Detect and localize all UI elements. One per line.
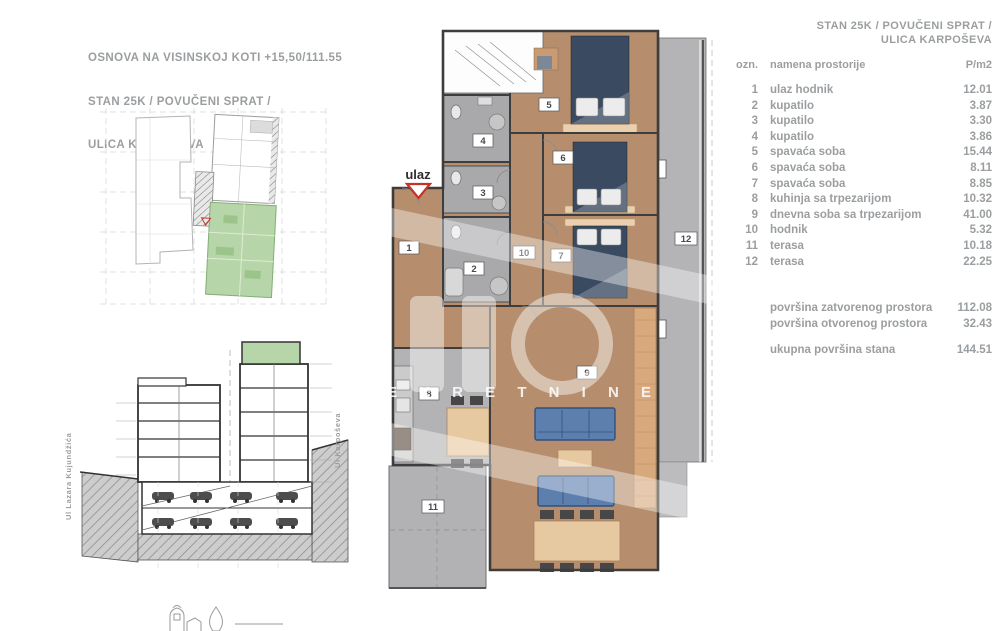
- title-line-1: OSNOVA NA VISINSKOJ KOTI +15,50/111.55: [88, 51, 342, 66]
- table-row: 10hodnik5.32: [728, 223, 992, 239]
- room-label-4: 4: [473, 134, 493, 147]
- agency-logo-sketch: [165, 602, 295, 631]
- svg-text:5: 5: [546, 100, 552, 111]
- room-label-12: 12: [675, 232, 697, 245]
- section-highlight-floor: [242, 342, 300, 364]
- svg-text:3: 3: [480, 188, 485, 199]
- table-row: 1ulaz hodnik12.01: [728, 83, 992, 99]
- bed-room6: [565, 142, 635, 213]
- street-label-left: Ul Lazara Kujundžića: [64, 388, 73, 520]
- room-label-11: 11: [422, 500, 444, 513]
- table-row: 8kuhinja sa trpezarijom10.32: [728, 192, 992, 208]
- terrace-12: [652, 38, 712, 462]
- col-ozn: ozn.: [728, 59, 758, 71]
- panel-header-line-1: STAN 25K / POVUČENI SPRAT /: [728, 20, 992, 34]
- section-right-tower: [240, 342, 308, 482]
- svg-text:6: 6: [560, 153, 565, 164]
- svg-text:12: 12: [681, 234, 692, 245]
- svg-text:1: 1: [406, 243, 412, 254]
- col-area: P/m2: [940, 59, 992, 71]
- room-label-3: 3: [473, 186, 493, 199]
- bed-room5: [563, 36, 637, 134]
- panel-header: STAN 25K / POVUČENI SPRAT / ULICA KARPOŠ…: [728, 20, 992, 47]
- table-row: 3kupatilo3.30: [728, 114, 992, 130]
- room-schedule-panel: STAN 25K / POVUČENI SPRAT / ULICA KARPOŠ…: [728, 20, 992, 359]
- room-label-2: 2: [464, 262, 484, 275]
- keyplan-wing: [190, 114, 281, 298]
- total-row: površina zatvorenog prostora112.08: [728, 301, 992, 317]
- section-left-tower: [138, 378, 220, 482]
- col-name: namena prostorije: [758, 59, 940, 71]
- street-label-right: Ul Karpoševa: [333, 372, 342, 468]
- sofa-1: [535, 408, 615, 440]
- svg-text:11: 11: [428, 502, 439, 513]
- watermark-text: E K R E T N I N E: [387, 384, 660, 401]
- key-plan: [98, 100, 333, 315]
- table-row: 2kupatilo3.87: [728, 99, 992, 115]
- svg-text:4: 4: [480, 136, 486, 147]
- table-row: 4kupatilo3.86: [728, 130, 992, 146]
- room-label-6: 6: [553, 151, 573, 164]
- floor-plan-sheet: { "title_block": { "line1": "OSNOVA NA V…: [0, 0, 1000, 631]
- totals-block: površina zatvorenog prostora112.08 površ…: [728, 301, 992, 359]
- room-label-5: 5: [539, 98, 559, 111]
- dining-table: [534, 521, 620, 561]
- table-row: 9dnevna soba sa trpezarijom41.00: [728, 208, 992, 224]
- bathroom-4: [443, 95, 510, 162]
- section-garage: [142, 482, 312, 534]
- table-row: 11terasa10.18: [728, 239, 992, 255]
- roof-area: [443, 31, 558, 93]
- entrance-label: ulaz: [405, 167, 431, 182]
- table-row: 7spavaća soba8.85: [728, 177, 992, 193]
- total-row: površina otvorenog prostora32.43: [728, 317, 992, 333]
- panel-header-line-2: ULICA KARPOŠEVA: [728, 34, 992, 48]
- room-label-1: 1: [399, 241, 419, 254]
- table-column-headers: ozn. namena prostorije P/m2: [728, 59, 992, 71]
- grand-total-row: ukupna površina stana144.51: [728, 343, 992, 359]
- building-section: [80, 330, 350, 595]
- terrace-11: [389, 466, 486, 588]
- table-row: 6spavaća soba8.11: [728, 161, 992, 177]
- keyplan-building-outline: [136, 116, 193, 264]
- floor-plan: ulaz 1 2 3 4 5 6 7 8 9 10 11 12 E K R E …: [375, 25, 720, 595]
- table-row: 12terasa22.25: [728, 255, 992, 271]
- table-row: 5spavaća soba15.44: [728, 145, 992, 161]
- svg-text:2: 2: [471, 264, 476, 275]
- room-table: 1ulaz hodnik12.01 2kupatilo3.87 3kupatil…: [728, 83, 992, 270]
